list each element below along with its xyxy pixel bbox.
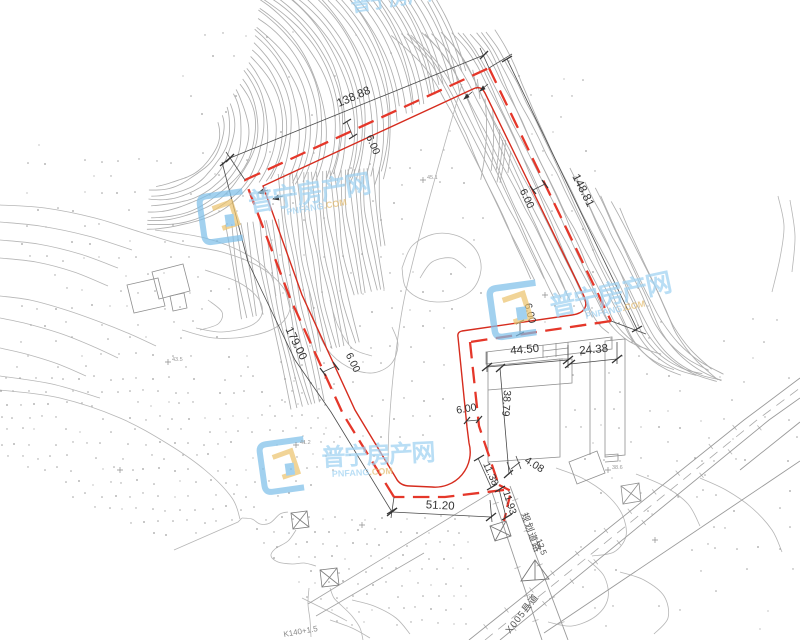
svg-text:24.38: 24.38 <box>579 343 609 357</box>
svg-text:45.1: 45.1 <box>427 175 438 181</box>
svg-text:38.79: 38.79 <box>499 390 513 417</box>
svg-text:38.6: 38.6 <box>612 465 623 471</box>
svg-text:41.2: 41.2 <box>300 440 311 446</box>
svg-text:51.20: 51.20 <box>425 499 454 512</box>
svg-text:44.50: 44.50 <box>510 343 540 357</box>
svg-text:43.5: 43.5 <box>172 357 183 363</box>
